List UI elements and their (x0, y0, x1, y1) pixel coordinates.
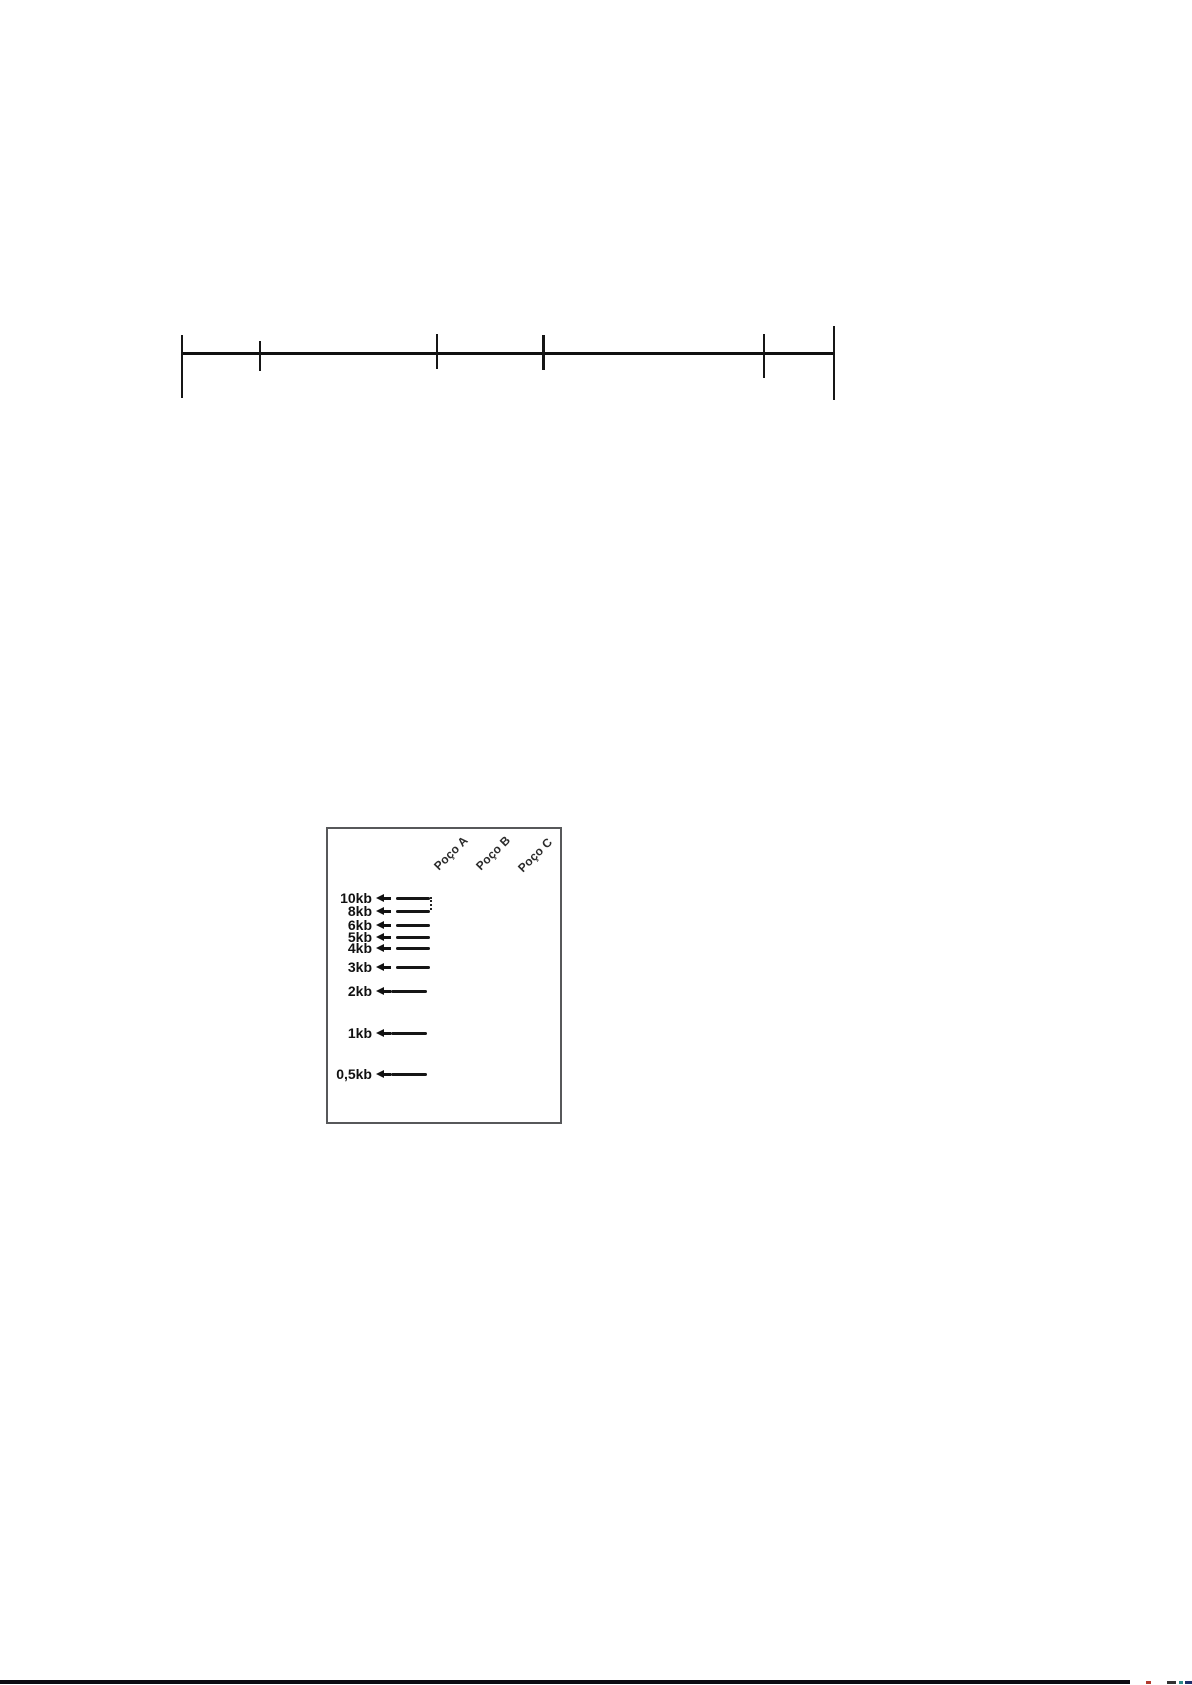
ladder-row: 3kb (334, 959, 430, 975)
ladder-row: 4kb (334, 940, 430, 956)
ruler-tick (436, 334, 438, 369)
left-arrow-icon (376, 983, 391, 999)
arrow-tail (384, 897, 391, 900)
dna-band (396, 897, 430, 900)
arrow-tail (384, 1073, 391, 1076)
dna-band (396, 924, 430, 927)
ruler-tick (833, 326, 835, 400)
ruler-baseline (182, 352, 835, 355)
left-arrow-icon (376, 1025, 391, 1041)
arrow-tail (384, 936, 391, 939)
arrow-tail (384, 924, 391, 927)
arrow-head (376, 1029, 384, 1037)
ruler-tick (259, 341, 261, 371)
left-arrow-icon (376, 940, 391, 956)
ladder-size-label: 1kb (334, 1025, 372, 1041)
ladder-size-label: 4kb (334, 940, 372, 956)
ruler-tick (542, 335, 545, 370)
arrow-head (376, 944, 384, 952)
gel-electrophoresis-box: Poço APoço BPoço C 10kb8kb6kb5kb4kb3kb2k… (326, 827, 562, 1124)
cropped-text-artifact (1185, 1681, 1192, 1684)
ruler-tick (181, 335, 183, 398)
arrow-head (376, 1070, 384, 1078)
page-bottom-rule (0, 1680, 1130, 1684)
ladder-size-label: 2kb (334, 983, 372, 999)
arrow-head (376, 987, 384, 995)
arrow-tail (384, 910, 391, 913)
arrow-tail (384, 966, 391, 969)
ladder-size-label: 0,5kb (334, 1066, 372, 1082)
arrow-head (376, 894, 384, 902)
arrow-tail (384, 947, 391, 950)
dotted-bracket (430, 897, 432, 910)
well-label: Poço B (473, 833, 513, 873)
dna-band (391, 1073, 427, 1076)
ruler-tick (763, 334, 765, 378)
arrow-head (376, 963, 384, 971)
arrow-head (376, 921, 384, 929)
cropped-text-artifact (1179, 1681, 1183, 1684)
ladder-row: 0,5kb (334, 1066, 427, 1082)
cropped-text-artifact (1146, 1681, 1151, 1684)
arrow-tail (384, 1032, 391, 1035)
arrow-tail (384, 990, 391, 993)
well-label: Poço A (431, 833, 471, 873)
left-arrow-icon (376, 959, 391, 975)
ladder-row: 1kb (334, 1025, 427, 1041)
dna-band (396, 966, 430, 969)
left-arrow-icon (376, 1066, 391, 1082)
ladder-row: 2kb (334, 983, 427, 999)
cropped-text-artifact (1167, 1681, 1176, 1684)
dna-band (396, 947, 430, 950)
well-label: Poço C (515, 835, 555, 875)
dna-band (396, 936, 430, 939)
arrow-head (376, 907, 384, 915)
dna-band (391, 990, 427, 993)
document-page: Poço APoço BPoço C 10kb8kb6kb5kb4kb3kb2k… (0, 0, 1192, 1685)
dna-band (396, 910, 430, 913)
dna-band (391, 1032, 427, 1035)
ladder-size-label: 3kb (334, 959, 372, 975)
